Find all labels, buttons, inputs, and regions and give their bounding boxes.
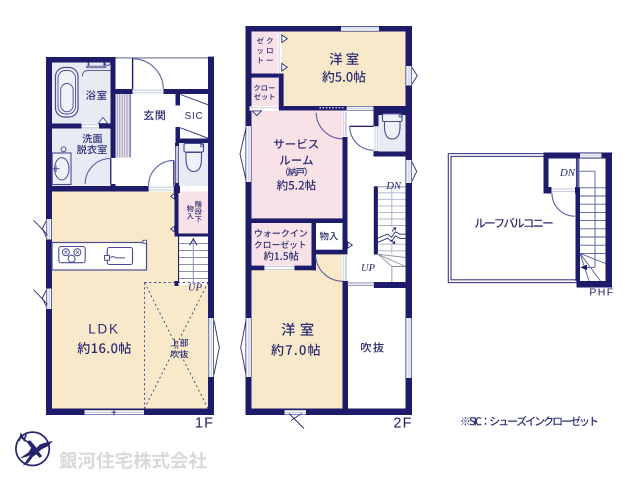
svg-text:UP: UP (188, 283, 203, 294)
svg-text:SIC: SIC (185, 111, 204, 122)
svg-text:2F: 2F (393, 416, 412, 432)
svg-text:DN: DN (559, 167, 576, 179)
svg-text:DN: DN (385, 181, 402, 192)
svg-text:LDK: LDK (88, 321, 119, 336)
svg-text:1F: 1F (195, 416, 214, 432)
svg-text:PHF: PHF (589, 286, 614, 298)
svg-text:UP: UP (361, 263, 376, 274)
